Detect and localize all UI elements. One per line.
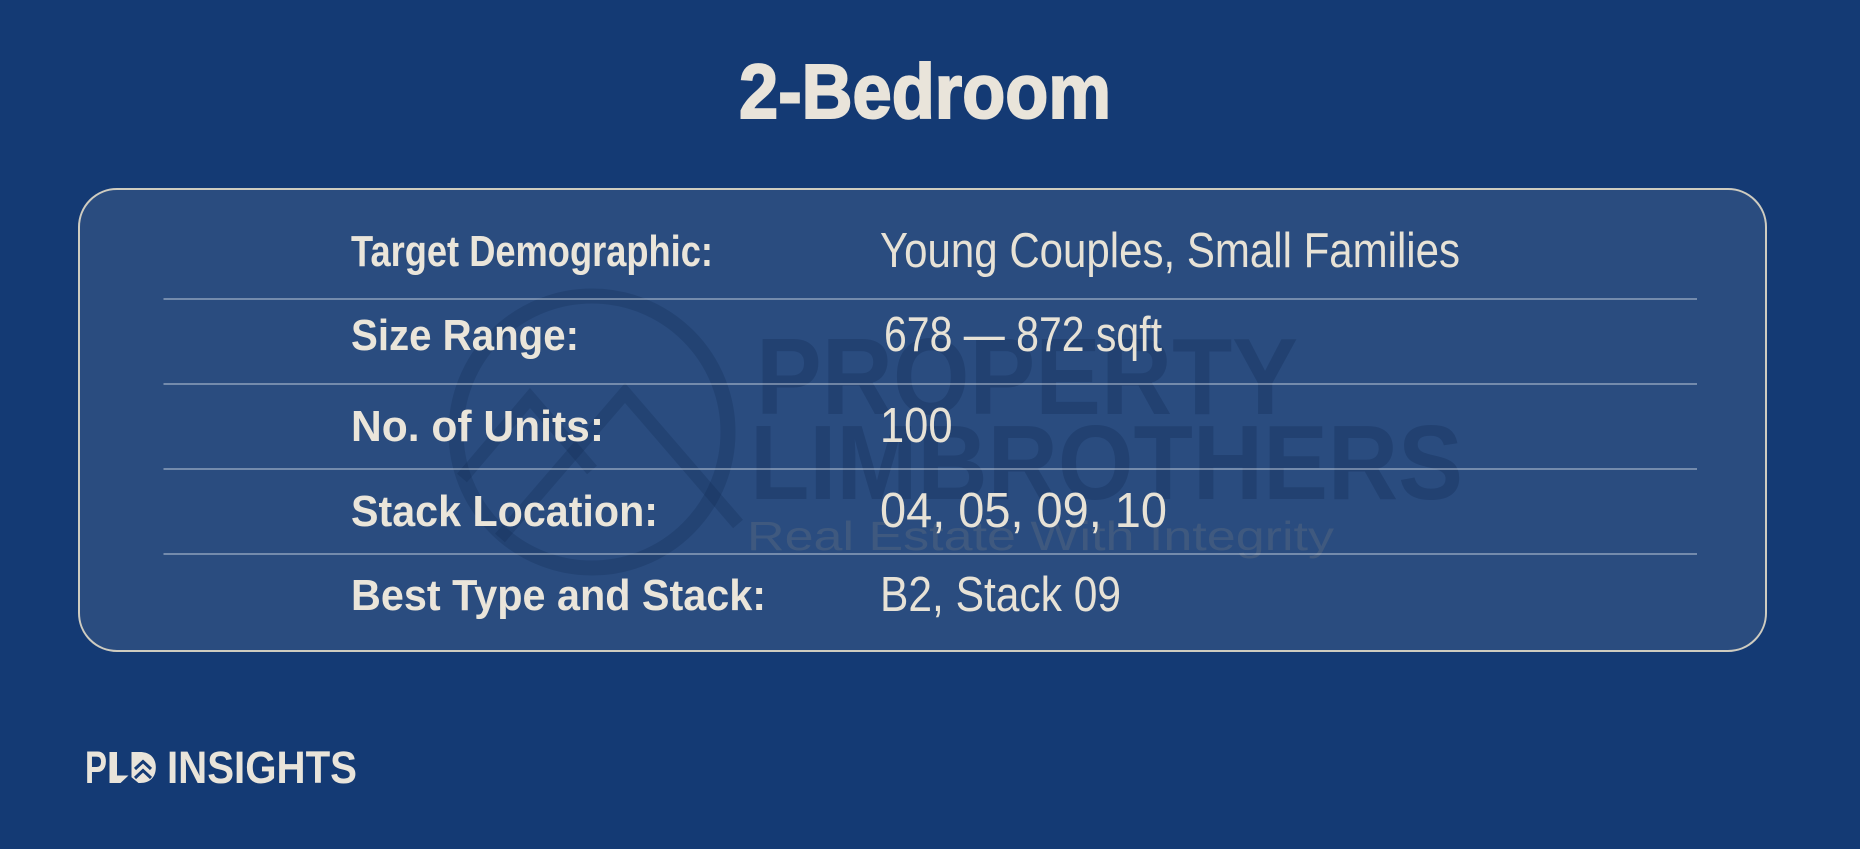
svg-text:678 — 872 sqft: 678 — 872 sqft xyxy=(884,308,1162,362)
svg-text:2-Bedroom: 2-Bedroom xyxy=(739,49,1111,135)
svg-text:Young Couples, Small Families: Young Couples, Small Families xyxy=(880,224,1460,278)
svg-text:Size Range:: Size Range: xyxy=(351,311,579,360)
svg-text:04, 05, 09, 10: 04, 05, 09, 10 xyxy=(880,484,1167,538)
svg-text:INSIGHTS: INSIGHTS xyxy=(167,742,357,793)
svg-text:B2, Stack 09: B2, Stack 09 xyxy=(880,568,1121,622)
svg-text:Stack Location:: Stack Location: xyxy=(351,487,658,536)
svg-text:Best Type and Stack:: Best Type and Stack: xyxy=(351,571,766,620)
svg-text:100: 100 xyxy=(880,399,953,453)
svg-text:Target Demographic:: Target Demographic: xyxy=(351,227,713,276)
svg-text:P: P xyxy=(85,742,107,793)
svg-text:No. of Units:: No. of Units: xyxy=(351,402,604,451)
